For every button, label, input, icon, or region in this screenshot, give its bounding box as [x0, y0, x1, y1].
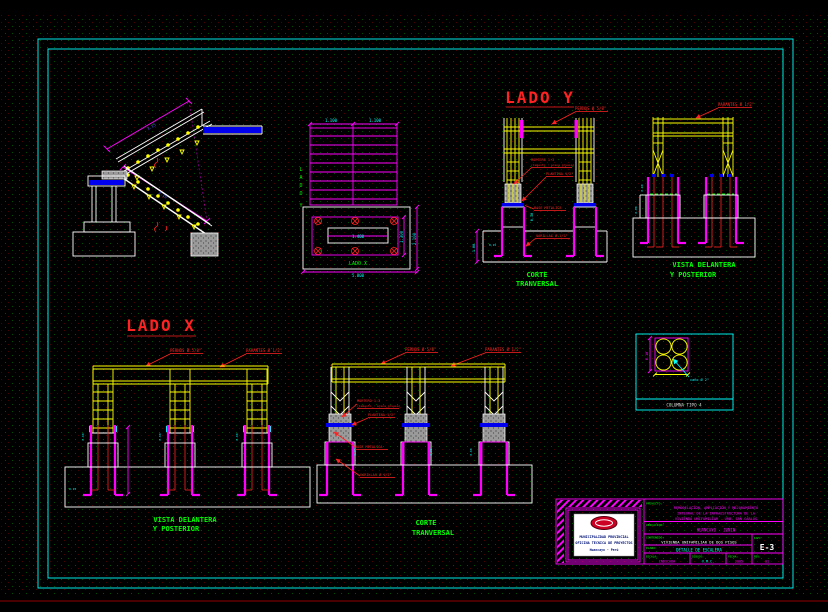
lado-y-letter: A — [299, 175, 302, 181]
plan-dim-right-outer: 2.100 — [412, 232, 417, 245]
plan-lado-y-vertical-label: L A D O Y — [299, 167, 302, 209]
lado-y-letter: L — [299, 167, 302, 173]
org-line-1: MUNICIPALIDAD PROVINCIAL — [580, 535, 629, 539]
lado-x-corte-view: PERNOS Ø 5/8" PARANTES Ø 1/2" — [317, 347, 532, 537]
plan-dim-bottom: 5.800 — [352, 273, 365, 278]
vista-y-bracket — [640, 195, 646, 218]
corte-x-beams — [332, 364, 505, 382]
mortero-label-1: MORTERO 1:3 — [531, 158, 554, 162]
perno-block-left — [520, 120, 524, 138]
lado-x-caption-1: VISTA DELANTERA — [153, 516, 217, 524]
proyecto-label: PROYECTO: — [646, 502, 662, 506]
parantes-label-x: PARANTES Ø 1/2" — [246, 348, 282, 353]
base-metalica-label: BASE METALICA — [534, 206, 562, 210]
vista-y-caption-1: VISTA DELANTERA — [672, 261, 736, 269]
proyecto-line-2: INTEGRAL DE LA INFRAESTRUCTURA DE LA — [677, 512, 756, 516]
lado-x-caption-2: Y POSTERIOR — [153, 525, 200, 533]
lado-y-letter: O — [299, 191, 302, 197]
lado-y-corte-view: LADO Y PERNOS Ø 5/8" — [472, 88, 608, 288]
vista-y-anchor-bars — [640, 177, 744, 243]
base-metalica-label-cx: BASE METALICA — [355, 445, 383, 449]
plantina-label-cx: PLANTINA 1/2" — [368, 413, 395, 417]
plano-label: PLANO: — [646, 546, 657, 550]
lado-x-vista-view: LADO X PERNOS Ø 5/8" PARANTES Ø 1/2" — [65, 316, 310, 533]
corte-y-caption-2: TRANVERSAL — [516, 280, 558, 288]
lado-x-beams — [93, 366, 268, 384]
org-line-3: Huancayo - Perú — [590, 548, 619, 552]
org-logo — [591, 517, 617, 530]
plan-lado-x-label: LADO X — [349, 261, 367, 267]
corte-x-footing — [317, 465, 532, 503]
rev-value: 01 — [765, 560, 769, 564]
corte-x-dim-2: 0.60 — [429, 448, 433, 455]
mortero-label-cx-1: MORTERO 1:3 — [357, 399, 380, 403]
plan-dim-inner: 1.400 — [352, 234, 365, 239]
ubicacion-value: HUANCAYO - JUNIN — [697, 528, 736, 533]
lado-y-title: LADO Y — [505, 88, 575, 107]
plan-top-dim — [308, 122, 399, 128]
dibujo-value: V.M.C. — [702, 560, 714, 564]
cad-drawing-sheet: 3.15 3.15 1.100 1.100 L A — [0, 0, 828, 612]
lado-x-footing — [65, 467, 310, 507]
proyecto-line-3: VIVIENDA UNIFAMILIAR - URB. SAN CARLOS — [675, 517, 757, 521]
column-dim-text: 0.10 — [645, 352, 649, 360]
vista-y-rebar — [647, 174, 737, 247]
plan-tread-grid — [310, 128, 397, 205]
column-square — [655, 338, 688, 371]
lower-flight-bolts — [126, 173, 200, 226]
hatch-strip-top — [557, 500, 642, 507]
lado-x-columns — [89, 369, 271, 433]
column-pipes — [656, 339, 687, 370]
lado-x-dim-2: 0.60 — [158, 433, 162, 440]
corte-x-caption-1: CORTE — [415, 519, 436, 527]
lado-y-letter: Y — [299, 203, 302, 209]
plano-value: DETALLE DE ESCALERA — [676, 548, 722, 553]
pipe-note: caño Ø 2" — [690, 377, 709, 382]
columna-tipo-detail: 0.10 caño Ø 2" COLUMNA TIPO 4 — [636, 334, 733, 410]
left-platform-support — [73, 171, 135, 256]
vista-y-caption-2: Y POSTERIOR — [670, 271, 717, 279]
escala-label: ESCALA: — [646, 555, 658, 559]
plan-dim-top-right: 1.100 — [369, 118, 382, 123]
lado-x-dim-3: 0.60 — [235, 433, 239, 440]
proyecto-line-1: REMODELACION, AMPLIACION Y MEJORAMIENTO — [674, 506, 758, 510]
lado-x-dim-line — [126, 425, 130, 496]
stair-footing-block — [191, 233, 218, 256]
perno-block-right — [575, 120, 579, 138]
mortero-label-cx-2: (Cemento : arena gruesa) — [357, 404, 401, 408]
stair-side-view: 3.15 3.15 — [73, 98, 262, 256]
upper-flight-stringers — [116, 109, 212, 174]
corte-y-dim-footing: -1.00 — [472, 244, 476, 255]
lower-flight-dim: 3.15 — [157, 190, 168, 200]
org-line-2: OFICINA TECNICA DE PROYECTOS — [575, 541, 632, 545]
corte-x-anchor-bars — [319, 442, 515, 495]
fecha-label: FECHA: — [728, 555, 738, 559]
rev-label: REV: — [754, 555, 761, 559]
corte-x-caps — [326, 414, 508, 442]
corte-y-dim-pedestal: 0.30 — [530, 213, 534, 221]
top-landing — [202, 109, 262, 134]
logo-cell: MUNICIPALIDAD PROVINCIAL OFICINA TECNICA… — [566, 508, 640, 562]
mortero-label-2: (Cemento : arena gruesa) — [531, 163, 575, 167]
corte-x-caption-2: TRANVERSAL — [412, 529, 454, 537]
corte-y-dim-foot: 0.15 — [489, 243, 496, 247]
hatch-strip-left — [557, 500, 564, 563]
lado-x-dim-base: 0.15 — [69, 487, 76, 491]
lado-x-anchor-bars — [83, 425, 277, 495]
lado-x-dim-1: 0.60 — [81, 433, 85, 440]
lado-y-vista-view: PARANTES Ø 1/2" — [633, 102, 755, 279]
corte-y-caption-1: CORTE — [526, 271, 547, 279]
fecha-value: 2005 — [735, 560, 743, 564]
vista-y-dim-lower: 0.60 — [634, 206, 638, 213]
lado-x-pedestal-2 — [165, 443, 195, 467]
pernos-label-cx: PERNOS Ø 5/8" — [405, 347, 436, 352]
drawing-canvas: 3.15 3.15 1.100 1.100 L A — [0, 0, 828, 612]
vista-y-dim-upper: 0.60 — [640, 184, 644, 191]
ubicacion-label: UBICACION: — [646, 523, 664, 527]
upper-flight-dim: 3.15 — [146, 122, 157, 131]
plan-view: 1.100 1.100 L A D O Y 1.400 — [299, 118, 419, 278]
lado-x-pedestal-1 — [88, 443, 118, 467]
pernos-label-x: PERNOS Ø 5/8" — [170, 348, 201, 353]
title-block: MUNICIPALIDAD PROVINCIAL OFICINA TECNICA… — [556, 499, 783, 564]
plan-dim-right-inner: 1.300 — [399, 230, 404, 243]
lam-value: E-3 — [760, 543, 775, 552]
lado-x-title: LADO X — [126, 316, 196, 335]
parantes-label-cx: PARANTES Ø 1/2" — [485, 347, 521, 352]
parantes-label: PARANTES Ø 1/2" — [718, 102, 754, 107]
corte-y-anchor-bars — [494, 207, 604, 256]
plantina-label: PLANTINA 1/2" — [546, 172, 573, 176]
lam-label: LAM: — [754, 536, 761, 540]
contenido-value: VIVIENDA UNIFAMILIAR DE DOS PISOS — [661, 540, 737, 545]
plan-dim-top-left: 1.100 — [325, 118, 338, 123]
column-bottom-dim — [653, 373, 690, 377]
detail-caption: COLUMNA TIPO 4 — [666, 403, 702, 408]
corte-x-dim-3: 0.60 — [469, 448, 473, 455]
escala-value: INDICADA — [659, 560, 675, 564]
lado-x-pedestal-3 — [242, 443, 272, 467]
dibujo-label: DIBUJO: — [692, 555, 704, 559]
vista-y-frame — [653, 117, 733, 177]
pernos-label: PERNOS Ø 5/8" — [575, 106, 606, 111]
varillas-label-cx: VARILLAS Ø 1/2" — [360, 472, 392, 477]
lado-y-letter: D — [299, 183, 302, 189]
varillas-label: VARILLAS Ø 1/2" — [536, 233, 568, 238]
